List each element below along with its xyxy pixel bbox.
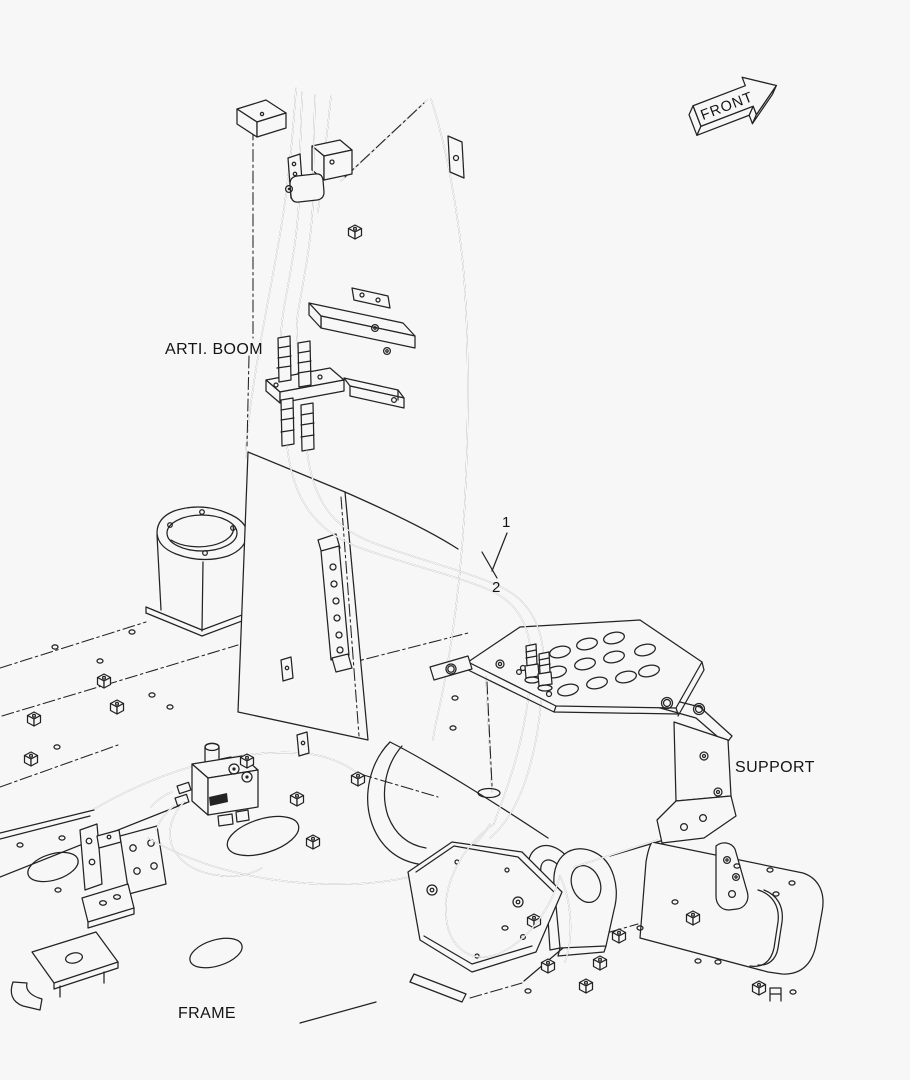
cross-member-drawing <box>94 753 438 809</box>
label-arti-boom: ARTI. BOOM <box>165 341 263 359</box>
support-platform-drawing <box>430 620 705 716</box>
label-support: SUPPORT <box>735 759 815 777</box>
front-direction-arrow: FRONT <box>683 67 786 144</box>
label-frame: FRAME <box>178 1005 236 1023</box>
diagram-canvas: FRONT ARTI. BOOM 1 2 SUPPORT FRAME <box>0 0 910 1080</box>
arti-boom-drawing <box>237 88 468 756</box>
callout-leader-lines <box>482 533 507 578</box>
shield-plate-drawing <box>408 842 562 972</box>
callout-2: 2 <box>492 579 501 596</box>
parts-diagram-drawing: FRONT <box>0 0 910 1080</box>
platform-post-drawing <box>478 676 500 798</box>
callout-1: 1 <box>502 514 511 531</box>
support-bracket-drawing <box>574 694 736 867</box>
